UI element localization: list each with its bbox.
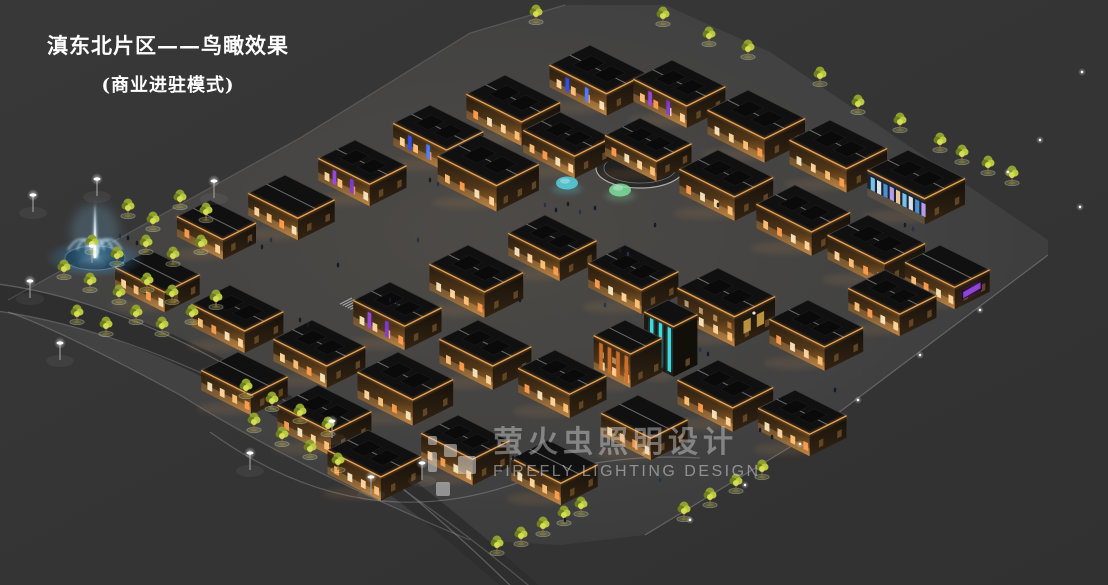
aerial-rendering-canvas: 滇东北片区——鸟瞰效果 (商业进驻模式) 萤火虫照明设计 FIREFLY LIG… bbox=[0, 0, 1108, 585]
page-title: 滇东北片区——鸟瞰效果 (商业进驻模式) bbox=[34, 30, 302, 97]
title-sub: (商业进驻模式) bbox=[34, 71, 302, 97]
title-main: 滇东北片区——鸟瞰效果 bbox=[34, 30, 302, 60]
